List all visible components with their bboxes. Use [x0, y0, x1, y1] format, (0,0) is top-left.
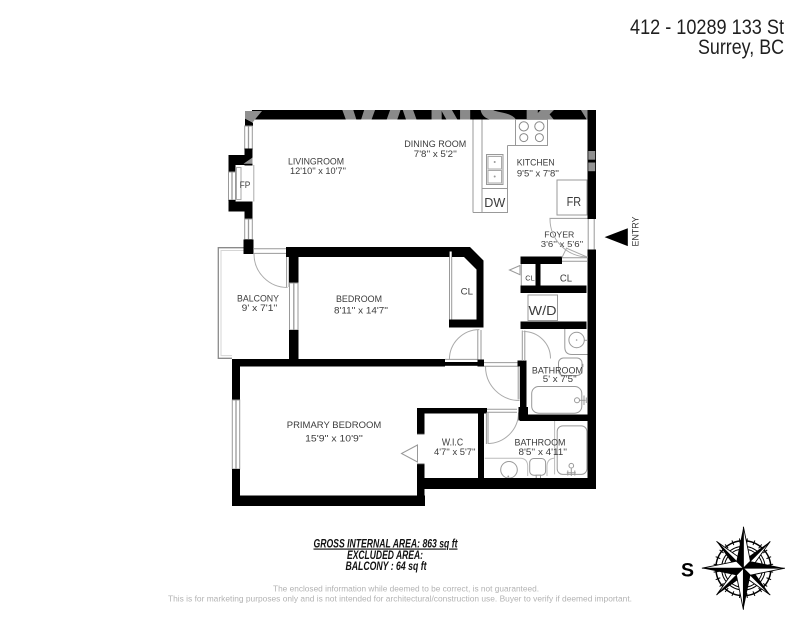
svg-text:4'7'' x 5'7'': 4'7'' x 5'7'' — [434, 447, 476, 457]
svg-text:9' x 7'1'': 9' x 7'1'' — [242, 303, 278, 313]
svg-text:7'8'' x 5'2'': 7'8'' x 5'2'' — [414, 149, 457, 160]
svg-text:FP: FP — [240, 180, 251, 190]
svg-text:DW: DW — [484, 195, 506, 210]
svg-text:CL: CL — [461, 287, 473, 298]
svg-text:12'10'' x 10'7'': 12'10'' x 10'7'' — [290, 166, 346, 177]
svg-text:FOYER: FOYER — [544, 230, 574, 240]
svg-text:FR: FR — [567, 195, 582, 209]
svg-text:8'5'' x 4'11'': 8'5'' x 4'11'' — [519, 447, 568, 457]
svg-text:8'11'' x 14'7'': 8'11'' x 14'7'' — [334, 306, 388, 317]
svg-text:KITCHEN: KITCHEN — [517, 157, 555, 168]
svg-text:BATHROOM: BATHROOM — [515, 437, 566, 447]
svg-text:PRIMARY BEDROOM: PRIMARY BEDROOM — [287, 420, 382, 431]
svg-text:VANSKY: VANSKY — [338, 84, 619, 153]
svg-text:This is for marketing purposes: This is for marketing purposes only and … — [168, 593, 632, 603]
svg-text:The enclosed information while: The enclosed information while deemed to… — [273, 583, 539, 593]
svg-text:W/D: W/D — [529, 303, 557, 318]
svg-text:ENTRY: ENTRY — [631, 217, 641, 247]
svg-text:5' x 7'5'': 5' x 7'5'' — [543, 374, 577, 384]
svg-text:Surrey, BC: Surrey, BC — [698, 36, 784, 59]
svg-text:BEDROOM: BEDROOM — [336, 294, 382, 305]
svg-text:CL: CL — [525, 274, 534, 283]
svg-text:S: S — [681, 559, 694, 581]
svg-text:15'9'' x 10'9'': 15'9'' x 10'9'' — [305, 433, 363, 444]
svg-text:BALCONY : 64 sq ft: BALCONY : 64 sq ft — [346, 560, 428, 573]
svg-text:9'5'' x 7'8'': 9'5'' x 7'8'' — [517, 169, 559, 180]
svg-text:CL: CL — [560, 273, 572, 285]
